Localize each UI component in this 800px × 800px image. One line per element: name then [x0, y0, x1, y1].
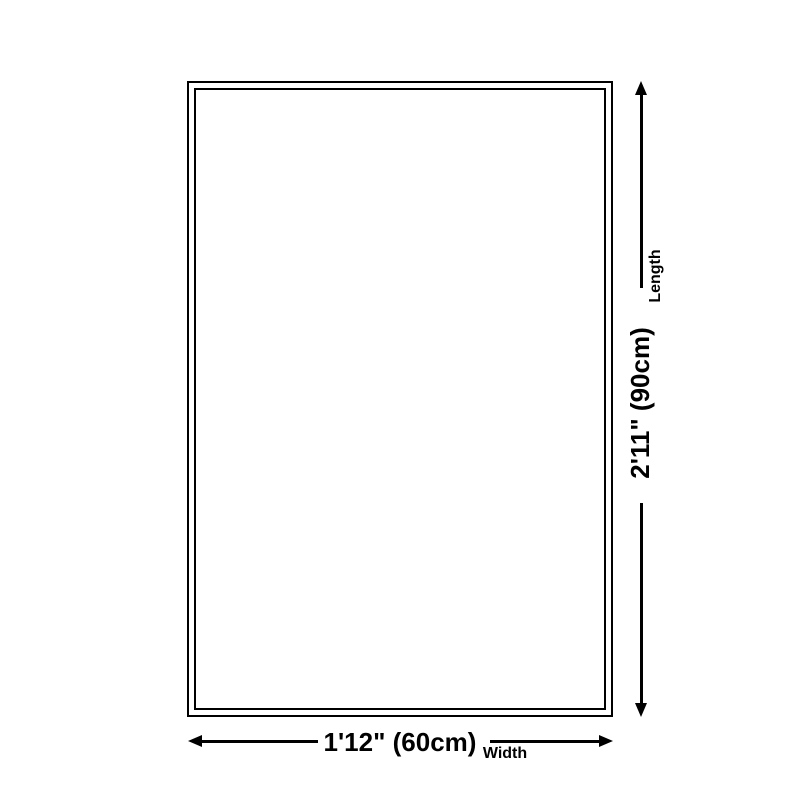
width-dimension-value: 1'12" (60cm): [320, 727, 480, 757]
length-axis-label: Length: [647, 246, 665, 306]
arrow-right-icon: [599, 735, 613, 747]
width-axis-label: Width: [478, 745, 532, 763]
rug-outline-inner: [194, 88, 606, 710]
length-dimension-value: 2'11" (90cm): [625, 319, 655, 487]
rug-outline: [187, 81, 613, 717]
arrow-down-icon: [635, 703, 647, 717]
length-arrow-line-top: [640, 94, 643, 288]
size-diagram: Length 2'11" (90cm) 1'12" (60cm) Width: [0, 0, 800, 800]
arrow-left-icon: [188, 735, 202, 747]
arrow-up-icon: [635, 81, 647, 95]
width-arrow-line-right: [490, 740, 599, 743]
width-arrow-line-left: [201, 740, 318, 743]
length-arrow-line-bottom: [640, 503, 643, 703]
